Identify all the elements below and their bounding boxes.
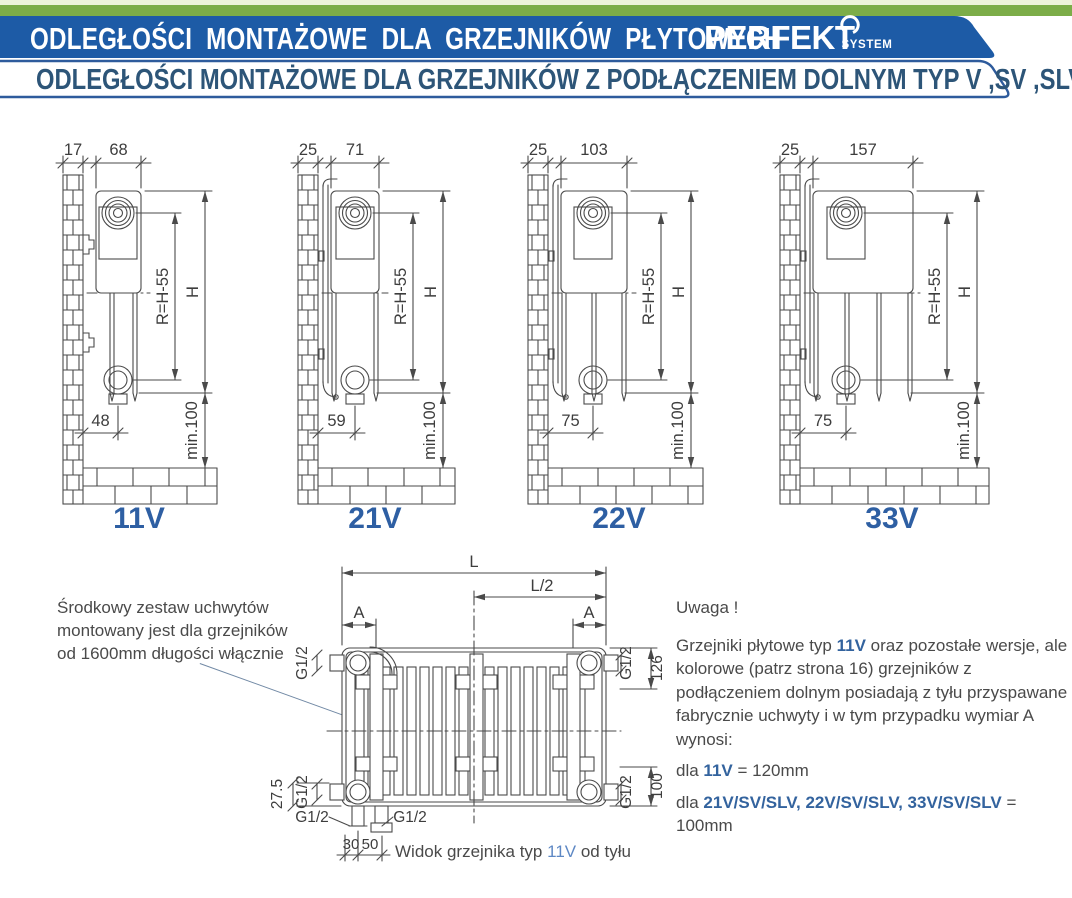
svg-text:59: 59 <box>327 412 345 430</box>
type-label-33v: 33V <box>860 502 924 536</box>
svg-text:25: 25 <box>529 141 547 159</box>
svg-text:H: H <box>670 286 688 298</box>
svg-text:100: 100 <box>649 773 666 799</box>
svg-text:G1/2: G1/2 <box>618 775 635 809</box>
brand-suffix: SYSTEM <box>842 39 893 56</box>
svg-text:17: 17 <box>64 141 82 159</box>
svg-text:L/2: L/2 <box>531 577 554 595</box>
svg-text:G1/2: G1/2 <box>618 646 635 680</box>
svg-text:A: A <box>353 604 364 622</box>
svg-text:G1/2: G1/2 <box>294 646 311 680</box>
svg-text:75: 75 <box>561 412 579 430</box>
brand-name: PERFEKT <box>704 20 855 56</box>
page-title: ODLEGŁOŚCI MONTAŻOWE DLA GRZEJNIKÓW PŁYT… <box>30 21 781 57</box>
svg-text:G1/2: G1/2 <box>294 775 311 809</box>
dimension-a-line1: dla 11V = 120mm <box>676 759 1070 783</box>
svg-text:50: 50 <box>362 836 379 853</box>
type-label-21v: 21V <box>343 502 407 536</box>
subtitle: ODLEGŁOŚCI MONTAŻOWE DLA GRZEJNIKÓW Z PO… <box>36 64 1072 96</box>
caption-type: 11V <box>547 842 576 861</box>
type-label-11v: 11V <box>107 502 171 536</box>
svg-text:H: H <box>956 286 974 298</box>
svg-text:75: 75 <box>814 412 832 430</box>
svg-text:G1/2: G1/2 <box>393 809 427 826</box>
svg-text:min.100: min.100 <box>955 401 973 460</box>
svg-text:25: 25 <box>299 141 317 159</box>
svg-text:H: H <box>422 286 440 298</box>
svg-text:min.100: min.100 <box>183 401 201 460</box>
svg-text:min.100: min.100 <box>669 401 687 460</box>
diagram-11v: 1768HR=H-55min.10048 <box>30 135 240 510</box>
svg-text:R=H-55: R=H-55 <box>640 268 658 325</box>
svg-text:126: 126 <box>649 655 666 681</box>
notes-type-ref: 11V <box>837 636 866 655</box>
svg-text:48: 48 <box>91 412 109 430</box>
diagram-33v: 25157HR=H-55min.10075 <box>747 135 1009 510</box>
svg-text:68: 68 <box>109 141 127 159</box>
svg-text:A: A <box>583 604 594 622</box>
diagram-22v: 25103HR=H-55min.10075 <box>495 135 725 510</box>
notes-paragraph: Grzejniki płytowe typ 11V oraz pozostałe… <box>676 634 1070 752</box>
svg-text:H: H <box>184 286 202 298</box>
svg-text:R=H-55: R=H-55 <box>926 268 944 325</box>
svg-text:G1/2: G1/2 <box>295 809 329 826</box>
type-label-22v: 22V <box>587 502 651 536</box>
svg-text:157: 157 <box>849 141 877 159</box>
rear-view-diagram: LL/2AAG1/2G1/227.5G1/2G1/2126100G1/2G1/2… <box>255 555 670 880</box>
dimension-a-line2: dla 21V/SV/SLV, 22V/SV/SLV, 33V/SV/SLV =… <box>676 791 1070 838</box>
svg-text:R=H-55: R=H-55 <box>392 268 410 325</box>
svg-text:27.5: 27.5 <box>269 779 286 809</box>
svg-text:30: 30 <box>343 836 360 853</box>
warning-title: Uwaga ! <box>676 596 1070 620</box>
rear-view-caption: Widok grzejnika typ 11V od tyłu <box>395 842 631 862</box>
diagram-21v: 2571HR=H-55min.10059 <box>265 135 470 510</box>
svg-text:71: 71 <box>346 141 364 159</box>
svg-text:103: 103 <box>580 141 608 159</box>
notes-block: Uwaga ! Grzejniki płytowe typ 11V oraz p… <box>676 596 1070 838</box>
page: { "header": { "title": "ODLEGŁOŚCI MONTA… <box>0 0 1072 898</box>
svg-text:R=H-55: R=H-55 <box>154 268 172 325</box>
brand-logo: PERFEKT SYSTEM <box>704 20 892 56</box>
svg-text:min.100: min.100 <box>421 401 439 460</box>
svg-text:25: 25 <box>781 141 799 159</box>
svg-text:L: L <box>469 555 478 571</box>
